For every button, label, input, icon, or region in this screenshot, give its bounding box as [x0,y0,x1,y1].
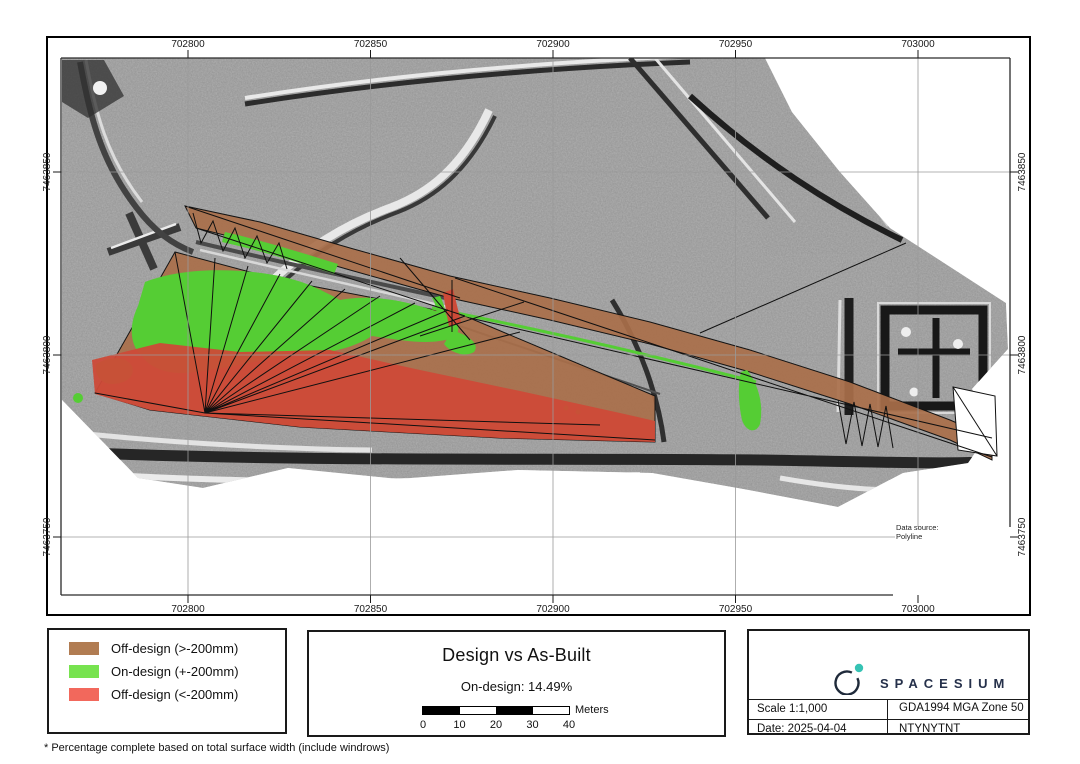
scalebar-segment [460,707,497,714]
data-source-line1: Data source: [896,523,939,532]
info-divider-vertical [887,699,888,733]
legend-label: Off-design (<-200mm) [111,687,238,702]
grid-label: 702950 [719,39,753,50]
scale-value: Scale 1:1,000 [757,703,827,715]
title-panel: Design vs As-Built On-design: 14.49% 0 1… [307,630,726,737]
info-panel: SPACESIUM Scale 1:1,000 GDA1994 MGA Zone… [747,629,1030,735]
grid-label: 702900 [536,39,570,50]
grid-label: 702900 [536,604,570,615]
legend-panel: Off-design (>-200mm) On-design (+-200mm)… [47,628,287,734]
scalebar-bar [422,706,570,715]
ondesign-percentage: On-design: 14.49% [309,679,724,694]
footnote: * Percentage complete based on total sur… [44,742,389,754]
overlay-unfilled-endcap [953,387,997,456]
grid-label: 702800 [171,39,205,50]
project-code: NTYNYTNT [899,723,960,735]
grid-label: 702800 [171,604,205,615]
grid-label: 702850 [354,604,388,615]
legend-label: Off-design (>-200mm) [111,641,238,656]
scalebar-segment [423,707,460,714]
scalebar-tick: 0 [408,719,438,731]
scalebar-segment [496,707,533,714]
legend-item-offdesign-high: Off-design (>-200mm) [69,637,285,660]
grid-label: 7463750 [1017,517,1028,556]
brand-wordmark: SPACESIUM [880,676,1010,691]
spacesium-logo: SPACESIUM [789,645,1019,695]
scalebar: 0 10 20 30 40 Meters [422,706,652,736]
grid-label: 702950 [719,604,753,615]
legend-swatch-offdesign-low [69,688,99,701]
legend-item-ondesign: On-design (+-200mm) [69,660,285,683]
grid-label: 7463850 [42,152,53,191]
scalebar-tick: 20 [481,719,511,731]
map-canvas: 702800 702850 702900 702950 703000 70280… [0,0,1080,620]
map-title: Design vs As-Built [309,645,724,666]
legend-swatch-ondesign [69,665,99,678]
legend-item-offdesign-low: Off-design (<-200mm) [69,683,285,706]
grid-label: 7463850 [1017,152,1028,191]
scalebar-tick: 40 [554,719,584,731]
info-divider [749,719,1028,720]
logo-ring-icon [789,645,879,695]
crs-value: GDA1994 MGA Zone 50 [899,702,1024,714]
map-report-page: 702800 702850 702900 702950 703000 70280… [0,0,1080,764]
data-source-line2: Polyline [896,532,922,541]
grid-label: 7463750 [42,517,53,556]
legend-swatch-offdesign-high [69,642,99,655]
legend-label: On-design (+-200mm) [111,664,239,679]
grid-label: 703000 [901,604,935,615]
scalebar-unit: Meters [575,704,609,716]
grid-label: 703000 [901,39,935,50]
grid-label: 702850 [354,39,388,50]
scalebar-segment [533,707,570,714]
grid-label: 7463800 [42,335,53,374]
grid-label: 7463800 [1017,335,1028,374]
date-value: Date: 2025-04-04 [757,723,847,735]
info-divider [749,699,1028,700]
scalebar-tick: 10 [445,719,475,731]
scalebar-tick: 30 [518,719,548,731]
